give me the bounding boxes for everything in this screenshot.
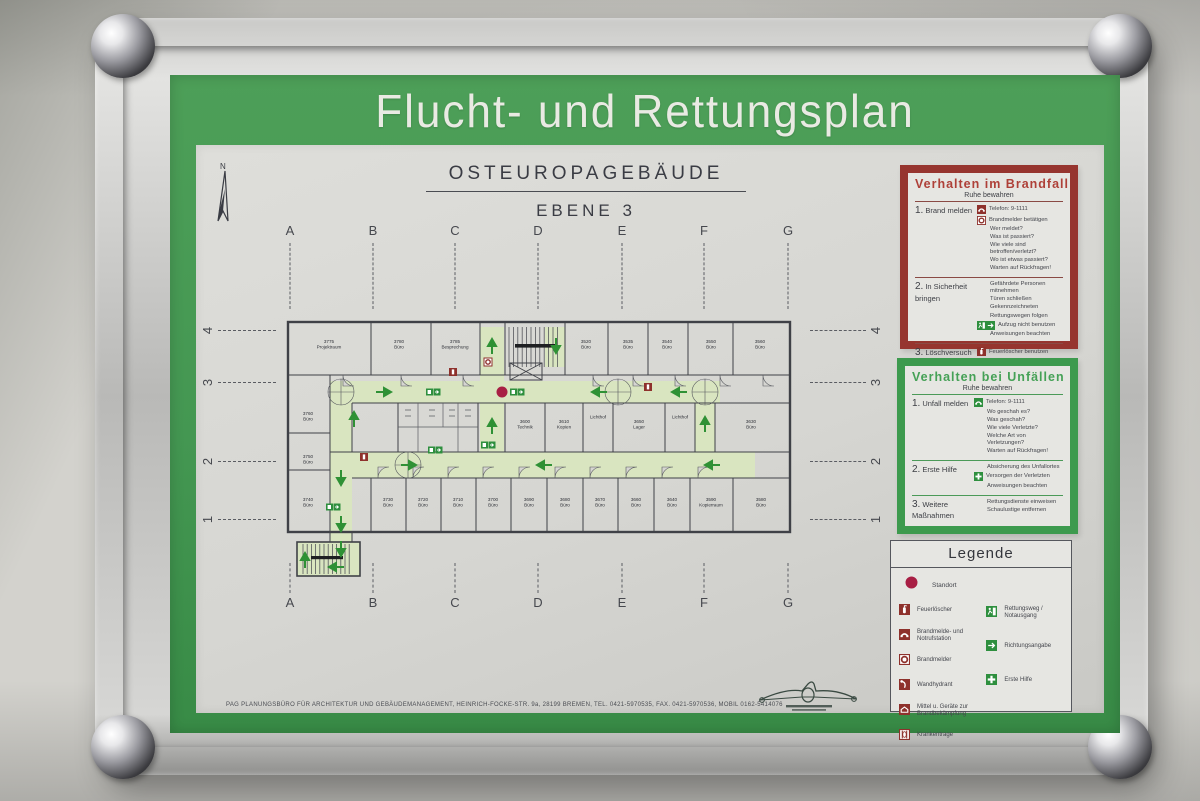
extinguisher-glyph xyxy=(452,369,454,374)
panel-brandfall-title: Verhalten im Brandfall xyxy=(915,177,1063,191)
room-label: 3710Büro xyxy=(453,497,464,507)
instruction-text: Gefährdete Personen mitnehmen xyxy=(990,281,1063,294)
exitman-icon xyxy=(986,606,997,617)
grid-col-label: A xyxy=(286,595,295,610)
instruction-row: Anweisungen beachten xyxy=(974,483,1063,490)
grid-dash xyxy=(788,243,789,309)
instruction-row: Anweisungen beachten xyxy=(977,331,1063,338)
legend-column-fire: FeuerlöscherBrandmelde- und Notrufstatio… xyxy=(899,602,986,752)
grid-col-label: A xyxy=(286,223,295,238)
panel-legend: Legende Standort FeuerlöscherBrandmelde-… xyxy=(890,540,1072,712)
instruction-text: Brandmelder betätigen xyxy=(989,217,1048,224)
room-label: 3535Büro xyxy=(623,339,634,349)
instruction-text: Was ist passiert? xyxy=(990,234,1034,241)
frame-corner-cap xyxy=(91,715,155,779)
instruction-text: Wer meldet? xyxy=(990,226,1023,233)
door-star xyxy=(328,379,354,405)
grid-dash xyxy=(218,519,276,520)
room-label: 3730Büro xyxy=(383,497,394,507)
cross-icon xyxy=(974,472,983,481)
grid-col-label: F xyxy=(700,223,708,238)
stretcher-icon xyxy=(899,729,910,740)
grid-dash xyxy=(290,243,291,309)
ring-icon xyxy=(977,216,986,225)
section-label: 3.Weitere Maßnahmen xyxy=(912,499,974,521)
instruction-text: Rettungswegen folgen xyxy=(990,313,1048,320)
grid-dash xyxy=(810,330,866,331)
grid-col-label: E xyxy=(618,595,627,610)
grid-row-label: 2 xyxy=(868,458,883,465)
legend-item: Feuerlöscher xyxy=(899,602,986,620)
svg-text:N: N xyxy=(220,162,226,171)
room-label: 3550Büro xyxy=(706,339,717,349)
instruction-row: Absicherung des Unfallortes xyxy=(974,464,1063,471)
room-label: 3740Büro xyxy=(303,497,314,507)
legend-item: Wandhydrant xyxy=(899,677,986,695)
room-label: 3520Büro xyxy=(581,339,592,349)
instruction-text: Wie viele Verletzte? xyxy=(987,425,1038,432)
grid-col-label: E xyxy=(618,223,627,238)
brandfall-section-1: 1.Brand meldenTelefon: 9-1111Brandmelder… xyxy=(915,201,1063,277)
grid-row-label: 3 xyxy=(200,379,215,386)
instruction-row: Schaulustige entfernen xyxy=(974,507,1063,514)
legend-item-label: Krankentrage xyxy=(917,732,981,739)
room-label: 3750Büro xyxy=(303,454,314,464)
instruction-text: Gekennzeichneten xyxy=(990,304,1038,311)
room-label: 3785Besprechung xyxy=(441,339,469,349)
instruction-row: Warten auf Rückfragen! xyxy=(974,448,1063,455)
interior-walls xyxy=(288,322,790,542)
panel-unfaelle-title: Verhalten bei Unfällen xyxy=(912,370,1063,384)
dirarrow-icon xyxy=(986,640,997,651)
legend-standort-label: Standort xyxy=(932,582,957,589)
grid-col-label: D xyxy=(533,595,542,610)
phone-red-icon xyxy=(899,629,910,640)
instruction-row: Wie viele Verletzte? xyxy=(974,425,1063,432)
legend-item: Rettungsweg / Notausgang xyxy=(986,604,1067,622)
grid-row-label: 1 xyxy=(200,516,215,523)
instruction-text: Welche Art von Verletzungen? xyxy=(987,433,1063,446)
grid-col-label: F xyxy=(700,595,708,610)
unfaelle-section-2: 2.Erste HilfeAbsicherung des Unfallortes… xyxy=(912,460,1063,495)
grid-row-label: 4 xyxy=(200,327,215,334)
room-label: 3650Lager xyxy=(633,419,645,429)
legend-item-label: Erste Hilfe xyxy=(1004,677,1067,684)
ring-icon xyxy=(899,654,910,665)
grid-col-label: C xyxy=(450,223,459,238)
room-label: 3560Büro xyxy=(755,339,766,349)
room-label: 3760Büro xyxy=(303,411,314,421)
room-label: 3700Büro xyxy=(488,497,499,507)
north-arrow-icon: N xyxy=(204,159,244,229)
room-label: 3660Büro xyxy=(631,497,642,507)
panel-unfaelle: Verhalten bei Unfällen Ruhe bewahren 1.U… xyxy=(897,358,1078,534)
elevator-x xyxy=(510,363,542,380)
frame-corner-cap xyxy=(1088,14,1152,78)
instruction-row: Wo ist etwas passiert? xyxy=(977,257,1063,264)
instruction-row: Warten auf Rückfragen! xyxy=(977,265,1063,272)
instruction-text: Aufzug nicht benutzen xyxy=(998,322,1055,329)
exit-sign-glyph xyxy=(512,390,515,394)
instruction-row: Aufzug nicht benutzen xyxy=(977,321,1063,330)
grid-col-label: G xyxy=(783,595,793,610)
brandfall-section-2: 2.In Sicherheit bringenGefährdete Person… xyxy=(915,277,1063,343)
instruction-text: Wo geschah es? xyxy=(987,409,1030,416)
legend-item: Brandmelde- und Notrufstation xyxy=(899,627,986,645)
panel-brandfall: Verhalten im Brandfall Ruhe bewahren 1.B… xyxy=(900,165,1078,349)
instruction-row: Was geschah? xyxy=(974,417,1063,424)
grid-dash xyxy=(810,461,866,462)
instruction-text: Schaulustige entfernen xyxy=(987,507,1046,514)
grid-col-label: B xyxy=(369,223,378,238)
section-label: 1.Unfall melden xyxy=(912,398,974,456)
extinguisher-icon xyxy=(977,347,986,356)
room-label: 3775Projektraum xyxy=(317,339,342,349)
room-label: 3780Büro xyxy=(394,339,405,349)
instruction-text: Anweisungen beachten xyxy=(990,331,1050,338)
legend-standort-row: Standort xyxy=(891,568,1071,600)
grid-row-label: 1 xyxy=(868,516,883,523)
grid-row-label: 4 xyxy=(868,327,883,334)
instruction-row: Gekennzeichneten xyxy=(977,304,1063,311)
door-swing xyxy=(763,375,774,386)
instruction-row: Wo geschah es? xyxy=(974,409,1063,416)
exitman-icon xyxy=(977,321,986,330)
room-label: Lichthof xyxy=(590,414,607,419)
legend-item: Richtungsangabe xyxy=(986,638,1067,656)
door-star xyxy=(692,379,718,405)
door-star xyxy=(605,379,631,405)
room-label: 3600Technik xyxy=(517,419,533,429)
exit-sign-glyph xyxy=(428,390,431,394)
footer-credit: PAG PLANUNGSBÜRO FÜR ARCHITEKTUR UND GEB… xyxy=(226,702,783,708)
room-label: 3610Kopien xyxy=(557,419,572,429)
instruction-text: Anweisungen beachten xyxy=(987,483,1047,490)
section-label: 1.Brand melden xyxy=(915,205,977,273)
dirarrow-icon xyxy=(986,321,995,330)
panel-brandfall-subtitle: Ruhe bewahren xyxy=(915,192,1063,201)
grid-dash xyxy=(810,519,866,520)
instruction-text: Wo ist etwas passiert? xyxy=(990,257,1048,264)
instruction-row: Telefon: 9-1111 xyxy=(974,398,1063,407)
room-label: 3670Büro xyxy=(595,497,606,507)
legend-item: Mittel u. Geräte zur Brandbekämpfung xyxy=(899,702,986,720)
extinguisher-glyph xyxy=(647,384,649,389)
cross-icon xyxy=(986,674,997,685)
instruction-row: Türen schließen xyxy=(977,296,1063,303)
instruction-text: Feuerlöscher benutzen xyxy=(989,349,1048,356)
plan-sheet: N OSTEUROPAGEBÄUDE EBENE 3 A B C D E F G… xyxy=(196,145,1104,713)
instruction-text: Wie viele sind betroffen/verletzt? xyxy=(990,242,1063,255)
legend-item-label: Feuerlöscher xyxy=(917,607,981,614)
standort-icon xyxy=(905,576,918,594)
grid-dash xyxy=(218,461,276,462)
room-label: 3630Büro xyxy=(746,419,757,429)
instruction-row: Rettungsdienste einweisen xyxy=(974,499,1063,506)
extinguisher-glyph xyxy=(363,454,365,459)
instruction-text: Rettungsdienste einweisen xyxy=(987,499,1056,506)
page-title: Flucht- und Rettungsplan xyxy=(189,77,1101,145)
instruction-text: Telefon: 9-1111 xyxy=(986,399,1025,406)
instruction-row: Wie viele sind betroffen/verletzt? xyxy=(977,242,1063,255)
room-label: 3680Büro xyxy=(560,497,571,507)
instruction-row: Gefährdete Personen mitnehmen xyxy=(977,281,1063,294)
instruction-row: Brandmelder betätigen xyxy=(977,216,1063,225)
floor-plan: 3775Projektraum3780Büro3785Besprechung35… xyxy=(283,315,800,590)
room-label: 3540Büro xyxy=(662,339,673,349)
grid-dash xyxy=(810,382,866,383)
section-label: 2.In Sicherheit bringen xyxy=(915,281,977,339)
grid-col-label: G xyxy=(783,223,793,238)
phone-green-icon xyxy=(974,398,983,407)
unfaelle-section-3: 3.Weitere MaßnahmenRettungsdienste einwe… xyxy=(912,495,1063,525)
grid-dash xyxy=(622,243,623,309)
instruction-row: Feuerlöscher benutzen xyxy=(977,347,1063,356)
instruction-row: Wer meldet? xyxy=(977,226,1063,233)
building-name: OSTEUROPAGEBÄUDE xyxy=(426,163,746,192)
stair-handrail xyxy=(311,556,343,559)
grid-dash xyxy=(218,382,276,383)
instruction-text: Telefon: 9-1111 xyxy=(989,206,1028,213)
room-label: 3720Büro xyxy=(418,497,429,507)
grid-dash xyxy=(373,243,374,309)
room-label: Lichthof xyxy=(672,414,689,419)
legend-item: Erste Hilfe xyxy=(986,672,1067,690)
stair-handrail xyxy=(515,344,555,348)
legend-title: Legende xyxy=(891,541,1071,568)
door-swing xyxy=(720,375,731,386)
grid-dash xyxy=(538,243,539,309)
exit-sign-glyph xyxy=(328,505,331,509)
grid-col-label: B xyxy=(369,595,378,610)
instruction-row: Versorgen der Verletzten xyxy=(974,472,1063,481)
instruction-text: Versorgen der Verletzten xyxy=(986,473,1050,480)
grid-dash xyxy=(218,330,276,331)
legend-item: Krankentrage xyxy=(899,727,986,745)
legend-item-label: Brandmelder xyxy=(917,657,981,664)
frame-corner-cap xyxy=(91,14,155,78)
instruction-row: Rettungswegen folgen xyxy=(977,313,1063,320)
exit-sign-glyph xyxy=(483,443,486,447)
instruction-text: Warten auf Rückfragen! xyxy=(990,265,1051,272)
legend-item-label: Brandmelde- und Notrufstation xyxy=(917,629,981,643)
plan-heading: OSTEUROPAGEBÄUDE EBENE 3 xyxy=(426,163,746,221)
planner-logo-airplane xyxy=(756,678,860,716)
grid-col-label: C xyxy=(450,595,459,610)
room-label: 3690Büro xyxy=(524,497,535,507)
legend-item-label: Mittel u. Geräte zur Brandbekämpfung xyxy=(917,704,981,718)
standort-marker xyxy=(497,387,508,398)
green-mat: Flucht- und Rettungsplan N OSTEUROPAGEBÄ… xyxy=(170,75,1120,733)
exit-sign-glyph xyxy=(430,448,433,452)
room-label: 3580Büro xyxy=(756,497,767,507)
grid-row-label: 2 xyxy=(200,458,215,465)
grid-row-label: 3 xyxy=(868,379,883,386)
grid-dash xyxy=(455,243,456,309)
instruction-text: Was geschah? xyxy=(987,417,1025,424)
instruction-row: Welche Art von Verletzungen? xyxy=(974,433,1063,446)
unfaelle-section-1: 1.Unfall meldenTelefon: 9-1111Wo geschah… xyxy=(912,394,1063,460)
grid-col-label: D xyxy=(533,223,542,238)
grid-dash xyxy=(704,243,705,309)
legend-item-label: Rettungsweg / Notausgang xyxy=(1004,606,1067,620)
legend-column-rescue: Rettungsweg / NotausgangRichtungsangabeE… xyxy=(986,602,1067,752)
section-label: 2.Erste Hilfe xyxy=(912,464,974,491)
room-label: 3640Büro xyxy=(667,497,678,507)
room-label: 3590Kopierraum xyxy=(699,497,723,507)
panel-unfaelle-subtitle: Ruhe bewahren xyxy=(912,385,1063,394)
legend-item-label: Wandhydrant xyxy=(917,682,981,689)
standort-dot-icon xyxy=(905,576,918,589)
level-name: EBENE 3 xyxy=(426,192,746,221)
legend-item: Brandmelder xyxy=(899,652,986,670)
instruction-text: Warten auf Rückfragen! xyxy=(987,448,1048,455)
instruction-text: Absicherung des Unfallortes xyxy=(987,464,1060,471)
instruction-row: Telefon: 9-1111 xyxy=(977,205,1063,214)
hydrant-icon xyxy=(899,679,910,690)
equipment-icon xyxy=(899,704,910,715)
instruction-row: Was ist passiert? xyxy=(977,234,1063,241)
instruction-text: Türen schließen xyxy=(990,296,1032,303)
legend-item-label: Richtungsangabe xyxy=(1004,643,1067,650)
wc-fixtures xyxy=(398,403,478,452)
phone-red-icon xyxy=(977,205,986,214)
extinguisher-icon xyxy=(899,604,910,615)
